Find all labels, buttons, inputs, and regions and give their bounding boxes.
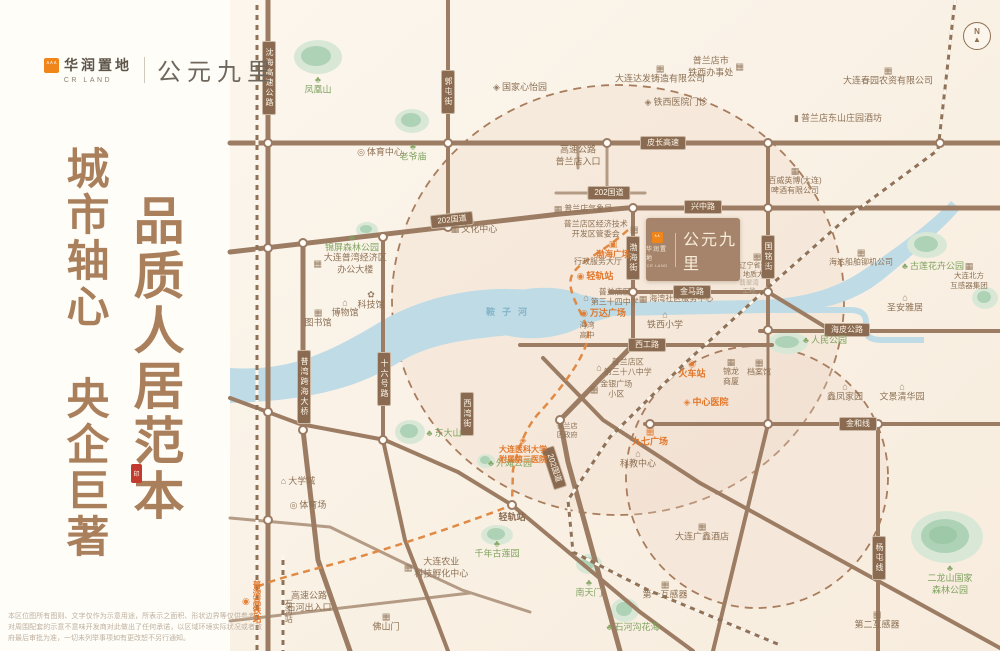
- building-icon: ▦: [755, 358, 764, 367]
- poi-text: 高速公路石河出入口: [286, 590, 331, 613]
- project-name: 公元九里: [157, 52, 277, 87]
- poi-label: ♣千年古莲园: [474, 540, 519, 561]
- poi-text: 普兰店区第三十四中学: [591, 288, 639, 309]
- poi-text: 博物馆: [331, 308, 358, 320]
- tree-icon: ♣: [427, 430, 433, 439]
- poi-text: 海湾高中: [580, 320, 595, 340]
- divider: [144, 57, 145, 83]
- poi-label: ▦普兰店气象局: [554, 204, 613, 214]
- poi-text: 大连农业科技孵化中心: [414, 556, 468, 579]
- building-icon: ▦: [554, 204, 563, 213]
- poi-text: 大连广鑫酒店: [675, 532, 729, 544]
- poi-text: 金银广场小区: [600, 380, 632, 401]
- poi-text: 东大山: [434, 428, 461, 440]
- poi-label: ▦第一互感器: [642, 581, 687, 602]
- brand-logo: 华润置地 CR LAND: [44, 55, 132, 84]
- poi-label: 翡翠湾工地: [739, 280, 759, 297]
- poi-label: ▦文化中心: [451, 224, 498, 236]
- river-label: 鞍子河: [486, 307, 534, 319]
- poi-label: ♣人民公园: [803, 335, 847, 347]
- poi-text: 渤海广场: [596, 249, 630, 260]
- road-label: 兴中路: [684, 200, 722, 214]
- poi-label: 海湾高中: [580, 320, 595, 340]
- calligraphy-seal: 印: [131, 464, 142, 483]
- building-icon: ▦: [661, 581, 670, 590]
- poi-text: 人民公园: [811, 335, 847, 347]
- property-brand-logo: 华润置地 CR LAND: [646, 232, 668, 268]
- poi-label: ◈大连医科大学附属第三医院: [499, 436, 547, 466]
- poi-label: ▣渤海广场: [596, 240, 630, 260]
- property-brand-cn: 华润置地: [646, 244, 668, 262]
- poi-label: ⌂博物馆: [331, 299, 358, 320]
- disclaimer-text: 本区位图所有图则、文字仅作为示意用途，所表示之面积、形状边界等仅供参考，对周围配…: [8, 611, 262, 645]
- ring-icon: ◎: [357, 149, 365, 158]
- poi-label: ✿科技馆: [357, 291, 384, 312]
- building-icon: ▦: [965, 262, 974, 271]
- poi-label: ◈铁西医院门诊: [645, 97, 708, 109]
- building-icon: ▦: [727, 358, 736, 367]
- poi-text: 大连北方互感器集团: [950, 271, 988, 291]
- poi-label: ⌂文景清华园: [879, 383, 924, 404]
- poi-text: 鑫凤家园: [827, 392, 863, 404]
- building-icon: ▦: [639, 294, 648, 303]
- poi-label: ▦海湾社区服务中心: [639, 294, 714, 304]
- building-icon: ▦: [451, 226, 460, 235]
- building-icon: ▦: [404, 564, 413, 573]
- slogan-column-1: 城市轴心 央企巨著: [62, 146, 105, 560]
- road-label: 普湾跨海大桥: [297, 350, 311, 424]
- poi-text: 海湾社区服务中心: [649, 294, 713, 304]
- brand-name-cn: 华润置地: [64, 55, 132, 75]
- school-icon: ⌂: [662, 311, 667, 320]
- brand-name-en: CR LAND: [64, 77, 112, 84]
- poi-label: ▦大连北方互感器集团: [950, 262, 988, 291]
- divider: [675, 233, 676, 267]
- poi-label: ⌂铁西小学: [647, 311, 683, 332]
- tree-icon: ♣: [315, 76, 321, 85]
- building-icon: ▦: [735, 63, 744, 72]
- poi-label: ⌂大学城: [281, 476, 315, 488]
- poi-text: 图书馆: [304, 318, 331, 330]
- poi-text: 大连春园农资有限公司: [843, 76, 933, 88]
- cr-land-logo-icon: [652, 232, 663, 243]
- poi-text: 千年古莲园: [474, 549, 519, 561]
- poi-text: 普兰店区第三十八中学: [604, 358, 652, 379]
- poi-label: ◎体育场: [290, 500, 327, 512]
- poi-label: ⌂圣安雅居: [887, 294, 923, 315]
- poi-label: ▦金银广场小区: [590, 380, 633, 401]
- poi-text: 高速公路普兰店入口: [555, 144, 600, 167]
- poi-label: ▦海达船舶铆机公司: [829, 248, 893, 267]
- poi-label: ♣东大山: [427, 428, 462, 440]
- poi-label: ◈国家心怡园: [493, 82, 547, 94]
- poi-label: ▦辽宁省第六地质大队: [740, 252, 775, 279]
- poi-text: 佛山门: [372, 622, 399, 634]
- poi-label: ◉火车站: [678, 360, 705, 381]
- building-icon: ▦: [873, 611, 882, 620]
- diamond-icon: ◈: [684, 399, 691, 408]
- house-icon: ⌂: [842, 383, 847, 392]
- poi-text: 万达广场: [590, 308, 626, 320]
- poi-text: 鞍子河: [486, 307, 534, 319]
- poi-text: 石河站: [283, 599, 293, 623]
- poi-text: 海达船舶铆机公司: [829, 257, 893, 267]
- poi-label: 高速公路石河出入口: [286, 590, 331, 613]
- road-label: 郭屯街: [441, 70, 455, 114]
- poi-text: 九七广场: [632, 437, 668, 449]
- poi-text: 科教中心: [620, 459, 656, 471]
- poi-text: 普兰店东山庄园酒坊: [801, 113, 882, 125]
- building-icon: ▦: [753, 252, 762, 261]
- tree-icon: ♣: [488, 460, 494, 469]
- poi-label: ▦大连普湾经济区办公大楼: [313, 252, 387, 275]
- poi-label: 普兰店区政府: [557, 422, 578, 440]
- school-icon: ⌂: [596, 364, 601, 373]
- station-icon: ◉: [577, 273, 585, 282]
- factory-icon: ▦: [656, 65, 665, 74]
- property-name: 公元九里: [683, 226, 740, 274]
- road-label: 金和线: [839, 417, 877, 431]
- poi-text: 南天门: [575, 588, 602, 600]
- poi-text: 锦龙商厦: [723, 367, 739, 388]
- ring-icon: ◎: [290, 502, 298, 511]
- bottle-icon: ▮: [794, 115, 799, 124]
- school-icon: ⌂: [281, 478, 286, 487]
- poi-label: ▦第二互感器: [854, 611, 899, 632]
- location-map-poster: 华润置地 CR LAND 公元九里 N ▲ 皮长高速202国道202国道兴中路金…: [0, 0, 1000, 651]
- building-icon: ▦: [857, 248, 866, 257]
- poi-label: ⌂普兰店区第三十四中学: [583, 288, 638, 309]
- tree-icon: ♣: [803, 337, 809, 346]
- diamond-icon: ◈: [493, 84, 500, 93]
- poi-text: 老爷庙: [399, 152, 426, 164]
- building-icon: ▦: [884, 67, 893, 76]
- building-icon: ▦: [590, 386, 599, 395]
- poi-label: ▦百威英博(大连)啤酒有限公司: [768, 167, 821, 197]
- poi-text: 铁西小学: [647, 320, 683, 332]
- poi-text: 铁西医院门诊: [653, 97, 707, 109]
- poi-label: ◉轻轨站: [577, 271, 614, 283]
- poi-label: ⌂科教中心: [620, 450, 656, 471]
- diamond-icon: ◈: [520, 436, 527, 445]
- poi-text: 大连医科大学附属第三医院: [499, 445, 547, 466]
- road-label: 西工路: [628, 338, 666, 352]
- poi-text: 凤凰山: [304, 85, 331, 97]
- tree-icon: ♣: [349, 234, 355, 243]
- poi-label: ◉万达广场: [580, 308, 626, 320]
- poi-text: 火车站: [678, 369, 705, 381]
- building-icon: ▦: [382, 613, 391, 622]
- north-compass: N ▲: [963, 22, 991, 50]
- poi-label: ▦档案馆: [747, 358, 771, 377]
- poi-text: 科技馆: [357, 300, 384, 312]
- poi-text: 文化中心: [461, 224, 497, 236]
- poi-label: 普兰店市铁西办事处▦: [688, 55, 744, 78]
- poi-text: 百威英博(大连)啤酒有限公司: [768, 176, 821, 197]
- poi-label: ◎体育中心: [357, 147, 403, 159]
- poi-label: ▦九七广场: [632, 428, 668, 449]
- poi-text: 第二互感器: [854, 620, 899, 632]
- poi-label: ⌂普兰店区第三十八中学: [596, 358, 651, 379]
- poi-text: 普兰店市铁西办事处: [688, 55, 733, 78]
- poi-label: ▦大连农业科技孵化中心: [404, 556, 469, 579]
- poi-label: ♣石河沟花海: [607, 622, 660, 634]
- poi-label: ♣南天门: [575, 579, 602, 600]
- poi-text: 二龙山国家森林公园: [927, 573, 972, 596]
- poi-text: 普兰店区政府: [557, 422, 578, 440]
- poi-label: 轻轨站: [498, 512, 525, 524]
- poi-label: ◈中心医院: [684, 397, 729, 409]
- tree-icon: ♣: [586, 579, 592, 588]
- poi-text: 文景清华园: [879, 392, 924, 404]
- poi-label: 石河站: [283, 599, 293, 623]
- building-icon: ▦: [646, 428, 655, 437]
- train-icon: ▣: [609, 240, 618, 249]
- poi-label: ▦锦龙商厦: [723, 358, 739, 388]
- tree-icon: ♣: [494, 540, 500, 549]
- poi-text: 大连普湾经济区办公大楼: [324, 252, 387, 275]
- poi-text: 中心医院: [692, 397, 728, 409]
- building-icon: ▦: [791, 167, 800, 176]
- building-icon: ▦: [313, 260, 322, 269]
- poi-text: 档案馆: [747, 367, 771, 377]
- diamond-icon: ◈: [645, 99, 652, 108]
- poi-text: 轻轨站: [498, 512, 525, 524]
- poi-label: ▦大连春园农资有限公司: [843, 67, 933, 88]
- road-label: 十六号路: [377, 352, 391, 406]
- poi-label: ♣二龙山国家森林公园: [927, 564, 972, 596]
- poi-text: 翡翠湾工地: [739, 280, 759, 297]
- road-label: 皮长高速: [640, 136, 686, 150]
- house-icon: ⌂: [899, 383, 904, 392]
- station-icon: ◉: [580, 310, 588, 319]
- poi-label: ▦大连广鑫酒店: [675, 523, 729, 544]
- poi-label: ▦佛山门: [372, 613, 399, 634]
- poi-label: ♣锦屏森林公园: [325, 234, 379, 255]
- tree-icon: ♣: [607, 624, 613, 633]
- poi-label: 高速公路普兰店入口: [555, 144, 600, 167]
- road-label: 杨屯线: [872, 536, 886, 580]
- tree-icon: ♣: [410, 143, 416, 152]
- poi-label: 普兰店区经济技术开发区管委会▦: [564, 220, 639, 241]
- poi-label: ⌂鑫凤家园: [827, 383, 863, 404]
- building-icon: ▦: [314, 309, 323, 318]
- poi-text: 体育中心: [367, 147, 403, 159]
- poi-text: 轻轨站: [586, 271, 613, 283]
- poi-label: ▮普兰店东山庄园酒坊: [794, 113, 882, 125]
- property-marker: 华润置地 CR LAND 公元九里: [646, 218, 740, 281]
- poi-text: 辽宁省第六地质大队: [740, 261, 775, 279]
- tree-icon: ♣: [947, 564, 953, 573]
- poi-text: 石河沟花海: [614, 622, 659, 634]
- tree-icon: ♣: [902, 263, 908, 272]
- flower-icon: ✿: [367, 291, 375, 300]
- house-icon: ⌂: [902, 294, 907, 303]
- building-icon: ▦: [630, 226, 639, 235]
- poi-label: ♣老爷庙: [399, 143, 426, 164]
- brand-header: 华润置地 CR LAND 公元九里: [44, 52, 277, 87]
- road-label: 西湾街: [460, 392, 474, 436]
- poi-text: 普兰店区经济技术开发区管委会: [564, 220, 628, 241]
- north-arrow-icon: ▲: [973, 36, 981, 44]
- building-icon: ▦: [698, 523, 707, 532]
- road-label: 202国道: [587, 186, 630, 200]
- house-icon: ⌂: [635, 450, 640, 459]
- poi-text: 普兰店气象局: [564, 204, 612, 214]
- house-icon: ⌂: [342, 299, 347, 308]
- poi-label: ▦图书馆: [304, 309, 331, 330]
- poi-label: ♣凤凰山: [304, 76, 331, 97]
- poi-text: 体育场: [299, 500, 326, 512]
- cr-land-logo-icon: [44, 58, 59, 73]
- poi-text: 圣安雅居: [887, 303, 923, 315]
- poi-text: 第一互感器: [642, 590, 687, 602]
- poi-text: 大学城: [288, 476, 315, 488]
- poi-text: 国家心怡园: [502, 82, 547, 94]
- station-icon: ◉: [688, 360, 696, 369]
- school-icon: ⌂: [583, 294, 588, 303]
- station-icon: ◉: [242, 597, 251, 607]
- property-brand-en: CR LAND: [647, 263, 668, 268]
